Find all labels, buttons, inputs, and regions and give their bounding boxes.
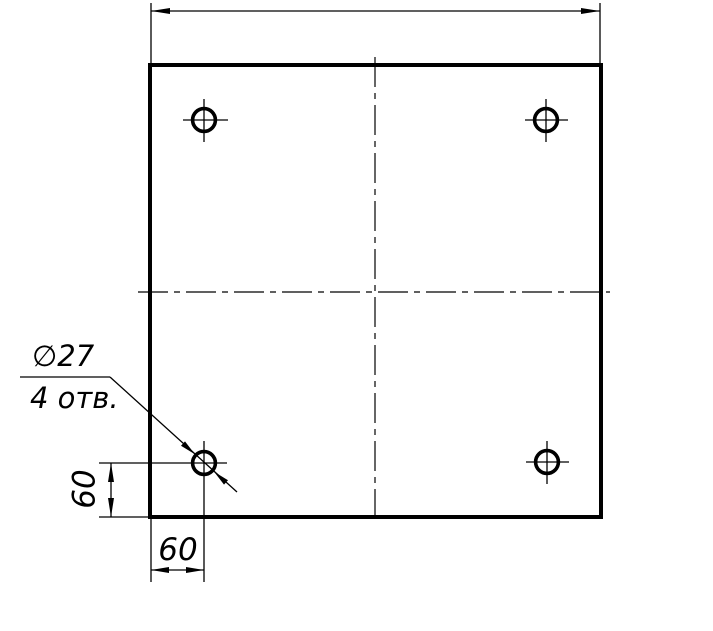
horizontal-60-dimension: 60 [151,519,204,582]
dimension-arrow-down-icon [108,498,114,517]
hole-top-left [183,99,228,142]
top-width-dimension [151,3,600,65]
callout-diameter-label: ∅27 [32,339,95,373]
plate-drawing-svg: ∅27 4 отв. 60 60 [0,0,713,631]
vertical-60-label: 60 [67,469,103,508]
hole-top-right [525,99,568,142]
callout-count-label: 4 отв. [30,381,119,415]
vertical-60-dimension: 60 [67,463,151,517]
dimension-arrow-right-icon [581,8,600,14]
horizontal-60-label: 60 [158,532,197,568]
hole-bottom-right [526,441,569,484]
dimension-arrow-up-icon [108,463,114,482]
dimension-arrow-left-icon [151,8,170,14]
engineering-drawing-sheet: ∅27 4 отв. 60 60 [0,0,713,631]
